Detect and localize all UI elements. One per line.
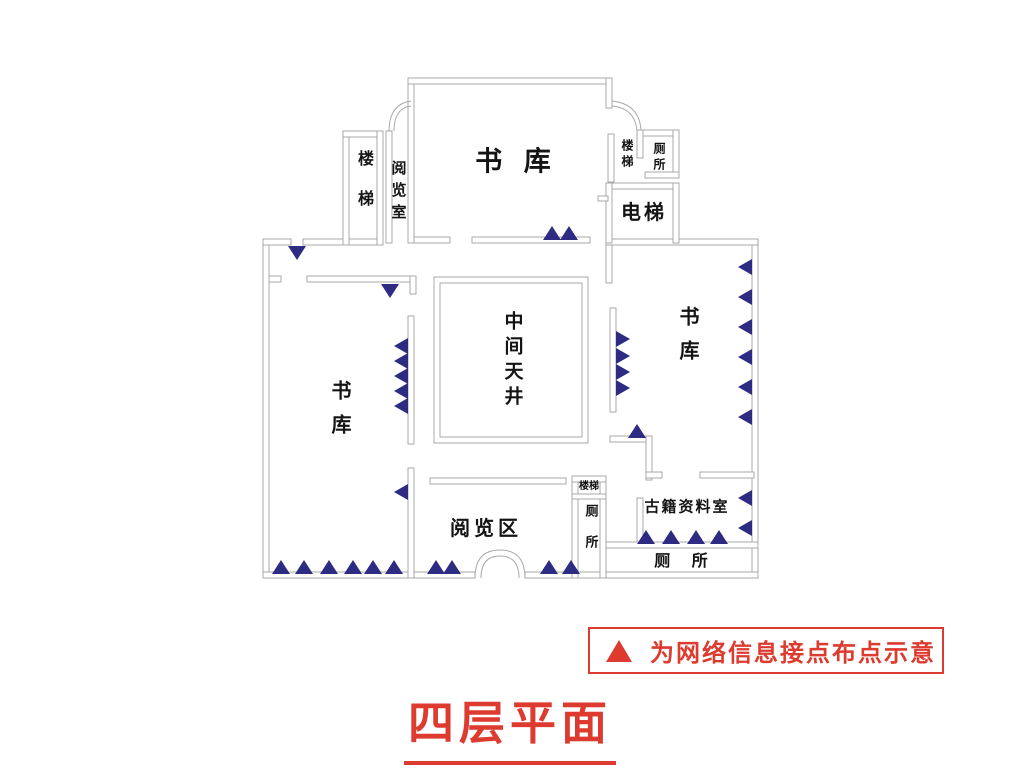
room-label-stacks-right: 书库 — [678, 306, 698, 374]
room-label-stairs-top-left: 楼梯 — [356, 150, 372, 230]
page-title: 四层平面 — [404, 687, 616, 765]
room-label-stairs-top-right: 楼梯 — [621, 139, 633, 171]
room-label-archives: 古籍资料室 — [644, 500, 729, 515]
room-label-toilet-middle: 厕所 — [584, 504, 597, 566]
room-label-toilet-top-right: 厕所 — [653, 142, 665, 174]
network-access-point-marker — [394, 353, 408, 369]
legend-text: 为网络信息接点布点示意 — [650, 633, 936, 668]
network-access-point-marker — [543, 226, 561, 240]
network-access-point-marker — [738, 409, 752, 425]
network-access-point-marker — [272, 560, 290, 574]
network-access-point-marker — [288, 246, 306, 260]
room-label-toilet-bottom-right: 厕 所 — [654, 553, 716, 569]
network-access-point-marker — [364, 560, 382, 574]
room-label-elevator: 电梯 — [621, 202, 667, 222]
network-access-point-marker — [738, 520, 752, 536]
network-access-point-marker — [443, 560, 461, 574]
network-access-point-marker — [738, 289, 752, 305]
network-access-point-marker — [710, 530, 728, 544]
network-access-point-marker — [394, 368, 408, 384]
room-label-stairs-middle: 楼梯 — [579, 482, 599, 492]
network-access-point-marker — [394, 484, 408, 500]
network-access-point-marker — [385, 560, 403, 574]
floor-plan-page: 楼梯 阅览室 书 库 楼梯 厕所 电梯 中间天井 书库 书库 阅览区 楼梯 厕所… — [0, 0, 1024, 781]
network-access-point-marker — [394, 383, 408, 399]
network-access-point-marker — [738, 259, 752, 275]
room-label-stacks-left: 书库 — [330, 380, 350, 448]
network-access-point-marker — [540, 560, 558, 574]
room-label-stacks-top: 书 库 — [475, 149, 556, 176]
network-access-point-marker — [616, 364, 630, 380]
network-access-point-marker — [560, 226, 578, 240]
network-access-point-marker — [295, 560, 313, 574]
legend-box: 为网络信息接点布点示意 — [588, 627, 944, 674]
network-access-point-marker — [616, 348, 630, 364]
room-label-reading-area: 阅览区 — [450, 518, 522, 538]
room-label-reading-room-top-left: 阅览室 — [391, 160, 406, 226]
network-access-point-marker — [616, 380, 630, 396]
network-access-point-marker — [738, 379, 752, 395]
network-access-point-marker — [738, 490, 752, 506]
network-access-point-marker — [344, 560, 362, 574]
network-access-point-marker — [320, 560, 338, 574]
room-label-central-atrium: 中间天井 — [503, 311, 522, 411]
network-access-point-marker — [616, 331, 630, 347]
network-access-point-marker — [628, 424, 646, 438]
network-access-point-marker — [427, 560, 445, 574]
network-access-point-marker — [394, 338, 408, 354]
network-access-point-marker — [381, 284, 399, 298]
legend-triangle-icon — [606, 640, 632, 662]
network-access-point-marker — [687, 530, 705, 544]
network-access-point-marker — [394, 398, 408, 414]
network-access-point-marker — [738, 349, 752, 365]
network-access-point-marker — [738, 319, 752, 335]
network-access-point-marker — [662, 530, 680, 544]
